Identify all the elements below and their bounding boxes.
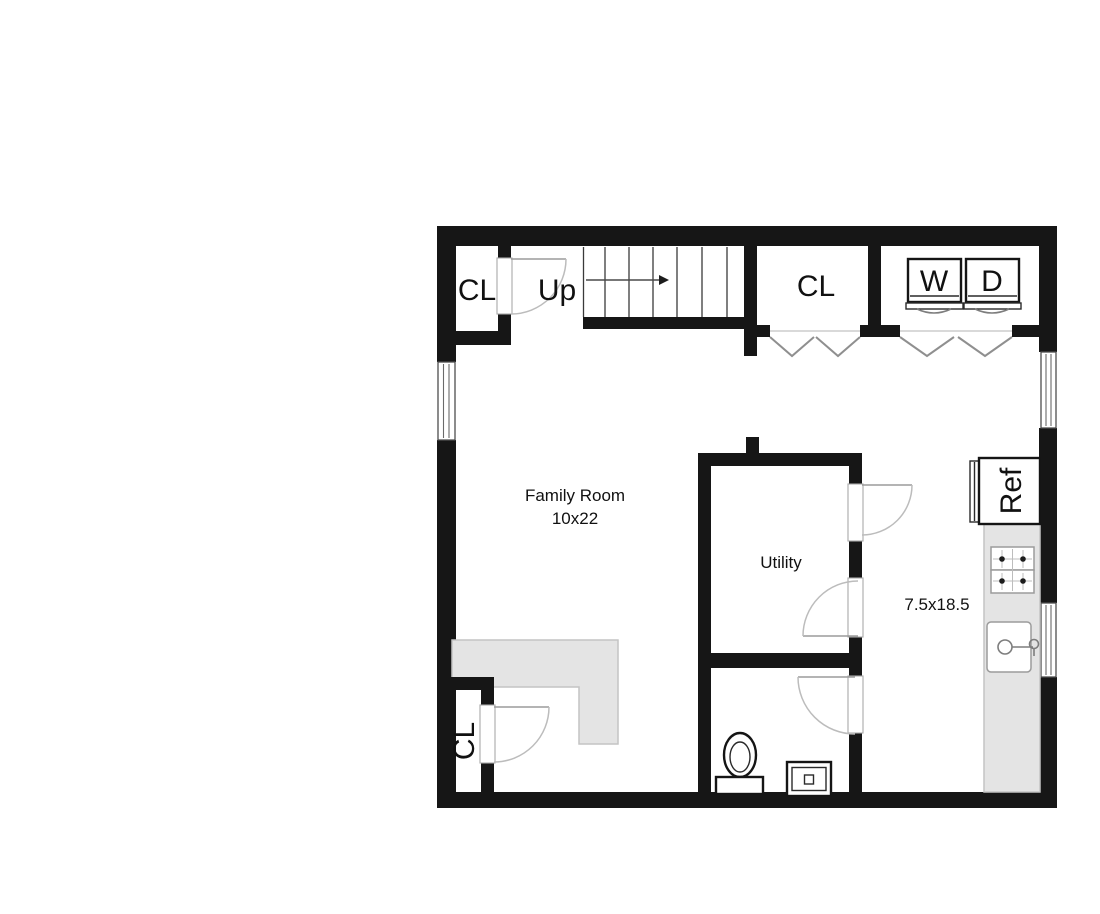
closet3-door-stub-top: [481, 677, 494, 705]
bathroom-door-jamb: [848, 676, 863, 733]
burner: [1020, 556, 1026, 562]
kitchen-sink: [987, 622, 1039, 672]
window-right-top: [1041, 352, 1056, 428]
stair-treads: [605, 247, 727, 317]
window-right-bottom: [1041, 603, 1056, 677]
bathroom-vanity: [787, 762, 831, 796]
closet2-bifold-doors: [770, 331, 860, 356]
family-room-name: Family Room: [525, 486, 625, 505]
utility-bottom-wall: [698, 653, 862, 668]
stairs-up-label: Up: [538, 274, 576, 307]
closet1-door-stub-top: [498, 246, 511, 258]
closet-top-left-label: CL: [458, 274, 496, 307]
floor-plan-drawing: CL Up CL W D Ref Family Room 10x22 Utili…: [0, 0, 1100, 914]
closet3-door: [494, 707, 549, 762]
window-left: [438, 362, 455, 440]
closet1-bottom-wall: [437, 331, 511, 345]
staircase: [584, 247, 728, 317]
washer-label: W: [920, 265, 949, 298]
window-frame: [1041, 603, 1056, 677]
toilet-tank: [716, 777, 763, 794]
closet-top-right-label: CL: [797, 270, 835, 303]
bifold-chevrons: [900, 337, 1012, 356]
window-frame: [1041, 352, 1056, 428]
closet2-front-stub-left: [757, 325, 770, 337]
utility-lower-door-jamb: [848, 578, 863, 637]
burner: [999, 556, 1005, 562]
closet-divider-wall: [868, 246, 881, 337]
bathroom-right-wall: [849, 733, 862, 792]
stair-right-wall: [744, 246, 757, 356]
stair-bottom-wall: [583, 317, 757, 329]
utility-right-wall-top: [849, 453, 862, 484]
washer-base: [906, 303, 963, 309]
closet-front-stub-middle: [860, 325, 900, 337]
burner: [999, 578, 1005, 584]
utility-top-stub: [746, 437, 759, 453]
window-frame: [438, 362, 455, 440]
stair-direction-arrow-head: [659, 275, 669, 285]
family-room-dimensions: 10x22: [552, 509, 598, 528]
kitchen-dimensions: 7.5x18.5: [904, 595, 969, 614]
toilet-bowl-inner: [730, 742, 750, 772]
outer-wall-right-middle: [1039, 428, 1057, 603]
cooktop: [991, 547, 1034, 593]
vanity-drain: [805, 775, 814, 784]
dryer-base: [964, 303, 1021, 309]
outer-wall-top: [437, 226, 1057, 246]
refrigerator-label: Ref: [995, 467, 1028, 514]
closet3-door-jamb: [480, 705, 495, 763]
utility-upper-door: [862, 485, 912, 535]
floor-plan-page: CL Up CL W D Ref Family Room 10x22 Utili…: [0, 0, 1100, 914]
interior-walls: [437, 246, 1039, 792]
burner: [1020, 578, 1026, 584]
utility-upper-door-jamb: [848, 484, 863, 541]
dryer-label: D: [981, 265, 1003, 298]
laundry-bifold-doors: [900, 331, 1012, 356]
door-swing-arc: [862, 485, 912, 535]
utility-top-wall: [698, 453, 862, 466]
closet-bottom-left-label: CL: [448, 722, 481, 760]
laundry-front-stub-right: [1012, 325, 1039, 337]
bathroom-door: [798, 677, 855, 734]
utility-room-label: Utility: [760, 553, 802, 572]
door-swing-arc: [798, 677, 855, 734]
utility-right-wall-middle: [849, 541, 862, 578]
closet3-door-stub-bottom: [481, 763, 494, 792]
door-swing-arc: [494, 707, 549, 762]
outer-wall-right-upper: [1039, 226, 1057, 352]
bifold-chevrons: [770, 337, 860, 356]
utility-bath-left-wall: [698, 453, 711, 792]
closet1-door-jamb: [497, 258, 512, 314]
outer-wall-right-lower: [1039, 677, 1057, 808]
toilet: [716, 733, 763, 794]
utility-right-wall-bottom: [849, 637, 862, 676]
